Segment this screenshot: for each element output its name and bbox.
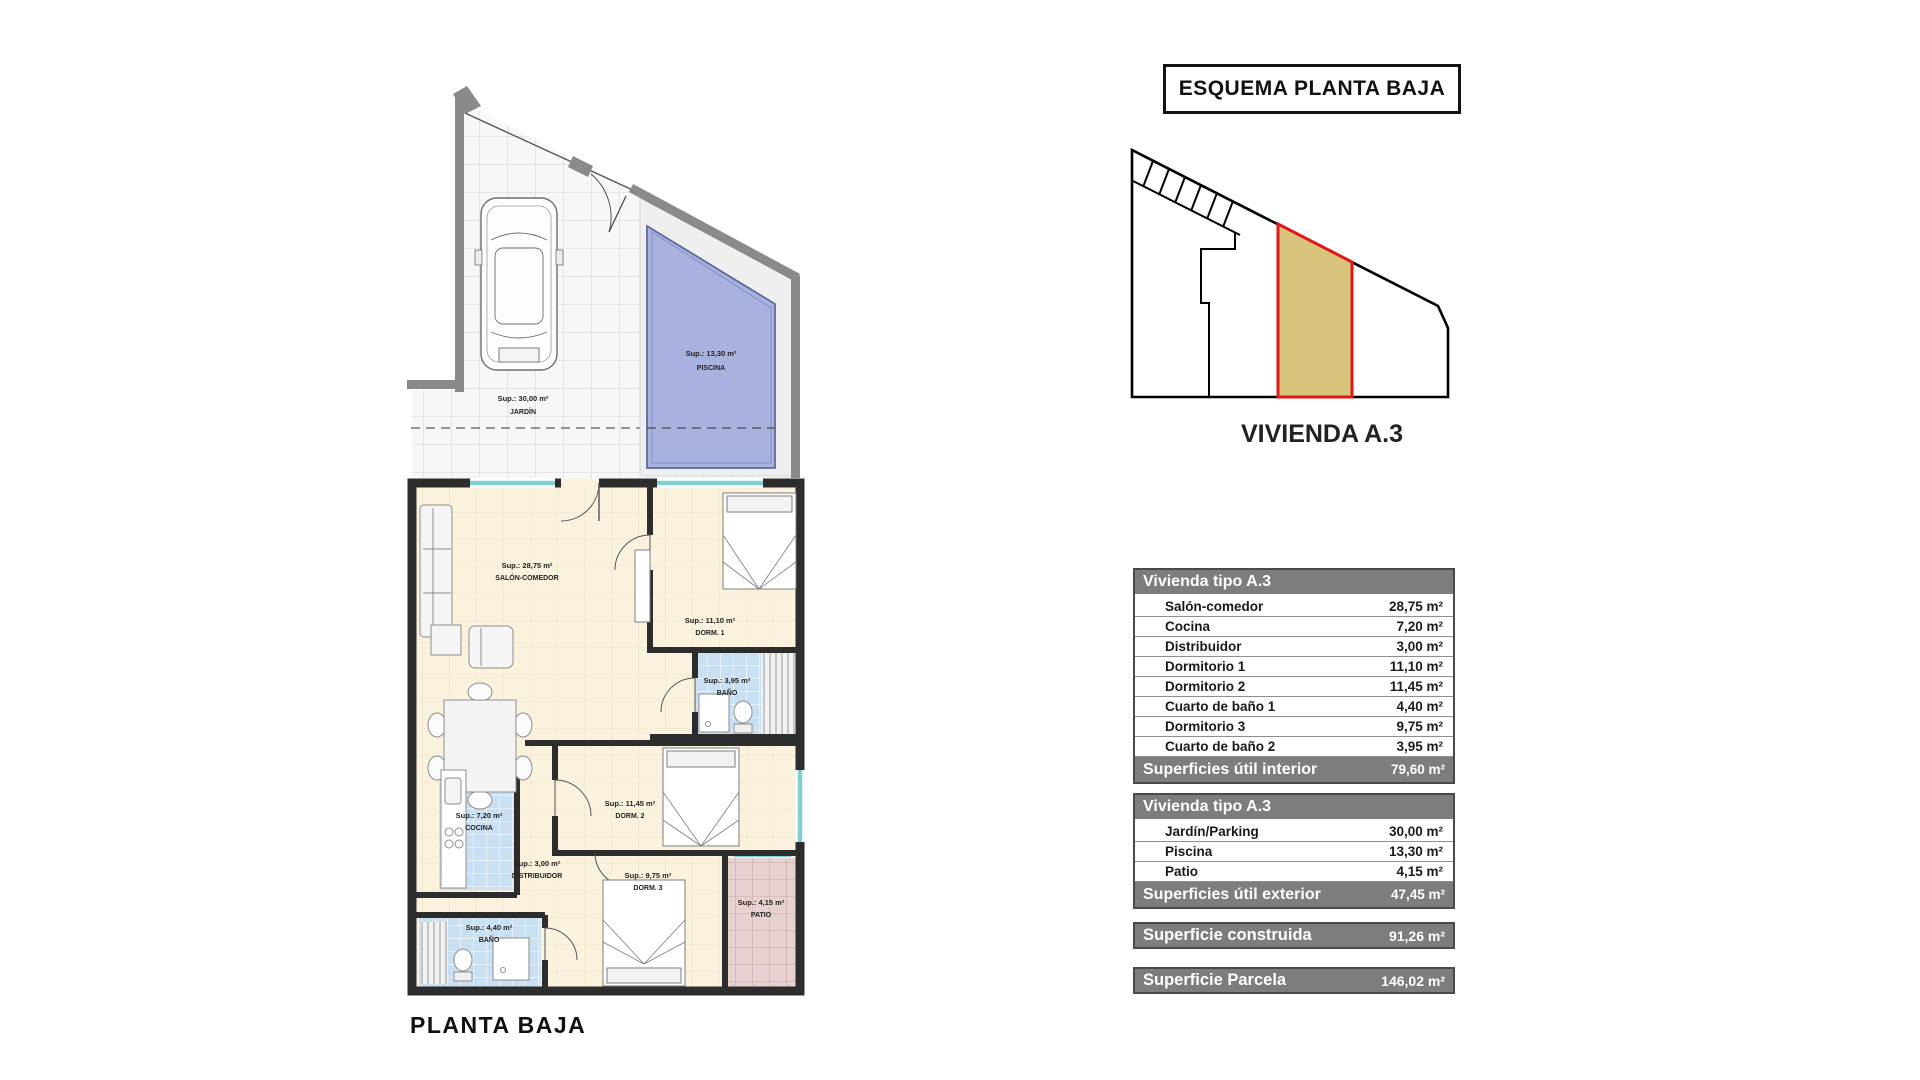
row-label: Dormitorio 3 [1165,719,1245,734]
patio-floor [725,858,796,988]
dorm2-name-label: DORM. 2 [615,813,644,820]
bar-label: Superficie Parcela [1143,971,1286,990]
table-interior: Vivienda tipo A.3 Salón-comedor28,75 m² … [1133,568,1455,784]
bano2-sup-label: Sup.: 4,40 m² [466,923,513,932]
salon-sup-label: Sup.: 28,75 m² [502,561,553,570]
footer-value: 79,60 m² [1391,762,1445,777]
row-value: 9,75 m² [1396,719,1443,734]
car-icon [475,198,563,370]
esquema-drawing: VIVIENDA A.3 [1125,145,1465,455]
table-exterior-header: Vivienda tipo A.3 [1135,795,1453,819]
row-label: Cuarto de baño 2 [1165,739,1275,754]
cocina-name-label: COCINA [465,825,493,832]
esquema-title-box: ESQUEMA PLANTA BAJA [1163,64,1461,114]
table-row: Cocina7,20 m² [1135,617,1453,637]
row-value: 13,30 m² [1389,844,1443,859]
piscina-name-label: PISCINA [697,365,725,372]
footer-label: Superficies útil interior [1143,761,1317,779]
footer-label: Superficies útil exterior [1143,886,1321,904]
table-header-label: Vivienda tipo A.3 [1143,798,1271,816]
table-row: Cuarto de baño 14,40 m² [1135,697,1453,717]
patio-sup-label: Sup.: 4,15 m² [738,898,785,907]
row-value: 28,75 m² [1389,599,1443,614]
sofa [420,505,452,637]
armchair [469,626,513,668]
jardin-name-label: JARDÍN [510,407,536,416]
table-row: Jardín/Parking30,00 m² [1135,822,1453,842]
bar-value: 146,02 m² [1381,973,1445,989]
row-value: 3,95 m² [1396,739,1443,754]
row-value: 7,20 m² [1396,619,1443,634]
plan-title: PLANTA BAJA [410,1012,586,1039]
row-label: Salón-comedor [1165,599,1263,614]
dorm1-sup-label: Sup.: 11,10 m² [685,616,736,625]
bano1-sup-label: Sup.: 3,95 m² [704,676,751,685]
piscina-sup-label: Sup.: 13,30 m² [686,349,737,358]
table-row: Dormitorio 39,75 m² [1135,717,1453,737]
row-value: 30,00 m² [1389,824,1443,839]
highlighted-unit [1278,224,1352,397]
superficie-parcela-bar: Superficie Parcela 146,02 m² [1133,967,1455,994]
wardrobe [635,550,650,622]
row-value: 3,00 m² [1396,639,1443,654]
table-header-label: Vivienda tipo A.3 [1143,573,1271,591]
bano2-name-label: BAÑO [479,935,500,944]
table-row: Dormitorio 211,45 m² [1135,677,1453,697]
row-value: 11,45 m² [1390,679,1443,694]
dorm3-name-label: DORM. 3 [633,885,662,892]
row-label: Dormitorio 1 [1165,659,1245,674]
row-value: 4,15 m² [1396,864,1443,879]
table-row: Patio4,15 m² [1135,862,1453,882]
dorm3-sup-label: Sup.: 9,75 m² [625,871,672,880]
row-label: Cocina [1165,619,1210,634]
row-label: Dormitorio 2 [1165,679,1245,694]
table-row: Dormitorio 111,10 m² [1135,657,1453,677]
bed-dorm1 [723,493,796,589]
row-label: Patio [1165,864,1198,879]
table-interior-footer: Superficies útil interior 79,60 m² [1135,757,1453,782]
pool-area: Sup.: 13,30 m² PISCINA [631,188,800,478]
footer-value: 47,45 m² [1391,887,1445,902]
floor-plan-drawing: Sup.: 30,00 m² JARDÍN Sup.: 13,30 m² PIS… [395,80,815,1030]
jardin-sup-label: Sup.: 30,00 m² [498,394,549,403]
cocina-sup-label: Sup.: 7,20 m² [456,811,503,820]
house: Sup.: 28,75 m² SALÓN-COMEDOR Sup.: 11,10… [412,483,800,991]
dorm2-sup-label: Sup.: 11,45 m² [605,799,656,808]
table-exterior-footer: Superficies útil exterior 47,45 m² [1135,882,1453,907]
table-exterior: Vivienda tipo A.3 Jardín/Parking30,00 m²… [1133,793,1455,909]
salon-name-label: SALÓN-COMEDOR [495,573,558,582]
superficie-construida-bar: Superficie construida 91,26 m² [1133,922,1455,949]
bano1-name-label: BAÑO [717,688,738,697]
row-label: Cuarto de baño 1 [1165,699,1275,714]
patio-name-label: PATIO [751,912,772,919]
row-value: 11,10 m² [1390,659,1443,674]
page: Sup.: 30,00 m² JARDÍN Sup.: 13,30 m² PIS… [0,0,1920,1080]
table-row: Piscina13,30 m² [1135,842,1453,862]
bed-dorm2 [663,748,739,846]
bar-value: 91,26 m² [1389,928,1445,944]
kitchen-counter [441,770,466,888]
row-label: Jardín/Parking [1165,824,1259,839]
side-table [431,625,461,655]
dorm1-name-label: DORM. 1 [695,630,724,637]
table-row: Distribuidor3,00 m² [1135,637,1453,657]
row-label: Distribuidor [1165,639,1242,654]
distribuidor-name-label: DISTRIBUIDOR [512,873,563,880]
distribuidor-sup-label: Sup.: 3,00 m² [514,859,561,868]
table-row: Cuarto de baño 23,95 m² [1135,737,1453,757]
table-interior-header: Vivienda tipo A.3 [1135,570,1453,594]
unit-label: VIVIENDA A.3 [1241,420,1403,448]
row-value: 4,40 m² [1396,699,1443,714]
bed-dorm3 [603,880,685,986]
row-label: Piscina [1165,844,1212,859]
table-row: Salón-comedor28,75 m² [1135,597,1453,617]
bar-label: Superficie construida [1143,926,1312,945]
